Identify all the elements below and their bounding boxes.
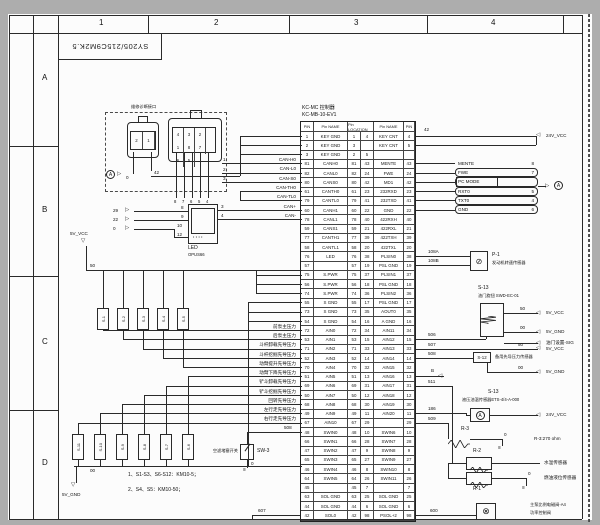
table-cell: 9 [404, 447, 415, 455]
table-cell: 66 [348, 437, 361, 445]
table-cell: 56 [348, 280, 361, 288]
pressure-sensor: S-3 [137, 308, 149, 330]
wire [103, 270, 104, 308]
wire [416, 349, 538, 350]
sensor-label: S-1 [101, 316, 106, 322]
wire [582, 15, 583, 519]
table-cell: 3 [348, 141, 361, 149]
table-cell: SOL GND [314, 502, 348, 510]
table-cell: 70 [301, 363, 314, 371]
wire [486, 337, 487, 339]
table-row: 58CANTL15820422TXL20 [301, 243, 415, 252]
table-cell: 16 [361, 317, 374, 325]
r1-name: R-1 [473, 487, 481, 493]
table-row: 72AIN07234AIN1134 [301, 326, 415, 335]
drawing-title: SY205/215C9M2K.5 [72, 42, 148, 51]
table-cell: 422RXH [374, 215, 404, 223]
table-cell: 42 [361, 178, 374, 186]
ets-name: S-13 [488, 390, 499, 396]
wire [122, 460, 123, 466]
table-cell: S.PWR [314, 289, 348, 297]
wire [448, 478, 466, 479]
sw3-name: SW-3 [257, 449, 269, 455]
table-cell: 3 [301, 151, 314, 159]
can-wire-label: CAN-L0 [236, 166, 296, 171]
can-wire-label: CAN-S0 [236, 176, 296, 181]
pin-label: 9 [181, 214, 184, 219]
table-cell [314, 262, 348, 270]
table-cell: 43 [404, 160, 415, 168]
wire [143, 270, 144, 308]
table-cell: 60 [301, 206, 314, 214]
wire [526, 478, 527, 486]
sig-label: 油门设置-SIG [546, 340, 574, 345]
table-cell: 17 [404, 299, 415, 307]
table-cell: 26 [361, 474, 374, 482]
wire [144, 395, 145, 434]
table-cell: 23 [404, 188, 415, 196]
gnd-label: 5V_GND [546, 329, 564, 334]
wire [222, 182, 302, 183]
table-cell: 61 [301, 188, 314, 196]
switch-label: S-11 [76, 443, 81, 451]
table-cell: CANTL1 [314, 243, 348, 251]
wire [100, 460, 101, 466]
wire [416, 136, 536, 137]
table-cell: 55 [348, 299, 361, 307]
table-cell: CANL1 [314, 215, 348, 223]
table-cell: 14 [361, 354, 374, 362]
table-cell [404, 151, 415, 159]
table-cell: SWIN10 [374, 465, 404, 473]
table-cell: 4 [404, 132, 415, 140]
signal-label: 回转先导压力 [150, 398, 296, 403]
table-cell: AOUT0 [374, 308, 404, 316]
table-cell: 64 [348, 474, 361, 482]
arrow-right-icon: ▷ [125, 207, 129, 213]
r2-name: R-2 [473, 449, 481, 455]
gnd-label: 0 [504, 432, 507, 437]
table-cell: 29 [404, 419, 415, 427]
page-fold-line [588, 14, 590, 522]
sensor-label: S-5 [181, 316, 186, 322]
led-module-model: OPUS66 [188, 253, 205, 258]
table-cell: 51 [348, 373, 361, 381]
grid-row-label: B [42, 206, 47, 215]
table-cell: 55 [301, 299, 314, 307]
can-wire-label: CAN-TL0 [236, 194, 296, 199]
wire [256, 275, 302, 276]
wire [416, 163, 455, 164]
table-cell: 25 [361, 493, 374, 501]
wire [134, 229, 174, 230]
table-cell: 422TXH [374, 234, 404, 242]
table-cell: 7 [404, 484, 415, 492]
table-cell: 48 [348, 428, 361, 436]
table-cell: 65 [301, 456, 314, 464]
table-cell: KEY CNT [374, 132, 404, 140]
wire [123, 330, 124, 339]
ets-sensor: A [470, 408, 490, 422]
table-cell: SWIN3 [314, 456, 348, 464]
sheet-ref-a: A [106, 170, 115, 179]
wire-label: 50 [520, 306, 525, 311]
table-row: 82CANL08224FWE24 [301, 169, 415, 178]
table-cell: 66 [301, 437, 314, 445]
table-cell: MENTE [374, 160, 404, 168]
pin-number: 2 [195, 128, 206, 141]
service-pin-label: MENTE [458, 161, 474, 166]
pressure-switch: S-7 [160, 434, 172, 460]
table-cell: 30 [361, 400, 374, 408]
table-row: 78CANL17840422RXH40 [301, 215, 415, 224]
service-pin-label: TXT0 [458, 198, 469, 203]
vcc-label: 5V_VCC [546, 310, 564, 315]
table-cell: PSL GND [374, 262, 404, 270]
service-pin-label: GND [458, 207, 468, 212]
table-cell: 11 [361, 410, 374, 418]
table-row: 49AIN94911AIN2011 [301, 410, 415, 419]
arrow-down-icon: ▽ [71, 482, 75, 488]
gnd-label: 0 [528, 471, 531, 476]
service-pin-number: 4 [524, 198, 534, 203]
table-cell: 28 [361, 437, 374, 445]
table-row: 2KEY GND3KEY CNT5 [301, 141, 415, 150]
service-pin-number: 5 [524, 189, 534, 194]
table-cell: 74 [348, 289, 361, 297]
wire [416, 210, 455, 211]
wire-label: 108A [428, 249, 439, 254]
controller-model: KC-MB-10-EV1 [302, 113, 336, 119]
note-1: 1、S1-S3、S6-S12：KM10-5； [128, 473, 199, 479]
wire [248, 321, 302, 322]
table-cell: MD1 [374, 178, 404, 186]
table-cell: 50 [301, 391, 314, 399]
table-cell: 21 [404, 225, 415, 233]
can-wire-label: CAN- [236, 213, 296, 218]
wire [122, 404, 123, 434]
table-cell: 44 [348, 502, 361, 510]
wire [416, 145, 536, 146]
wire [78, 423, 79, 434]
p1-label: 发动机转速传感器 [492, 261, 526, 266]
table-cell: 53 [348, 336, 361, 344]
table-cell: 30 [404, 400, 415, 408]
wire [487, 372, 538, 373]
table-cell: 45 [348, 484, 361, 492]
led-module-pins-icon: •••• [193, 236, 204, 240]
table-cell: CANTL0 [314, 197, 348, 205]
table-cell: AIN5 [314, 373, 348, 381]
pin-label: 12 [177, 232, 182, 237]
wire [448, 463, 449, 478]
potentiometer-icon [484, 312, 492, 333]
table-cell: SWIN0 [314, 428, 348, 436]
table-cell: 22 [361, 206, 374, 214]
pin-number: 1 [173, 141, 184, 154]
wire [78, 423, 302, 424]
resistor-r3-icon [448, 435, 470, 453]
table-cell: 40 [404, 215, 415, 223]
arrow-down-icon: ▽ [81, 238, 85, 244]
pin-number: 3 [184, 128, 195, 141]
table-cell: AIN18 [374, 391, 404, 399]
arrow-left-icon: ◁ [536, 412, 540, 418]
wire [166, 460, 167, 466]
table-row: 46SWIN4468SWIN108 [301, 465, 415, 474]
wire [416, 200, 455, 201]
signal-label: 前泵主压力 [150, 324, 296, 329]
table-cell: LED [314, 252, 348, 260]
table-cell: 64 [301, 474, 314, 482]
table-cell: 2 [301, 141, 314, 149]
wire [166, 386, 302, 387]
table-cell: 18 [361, 280, 374, 288]
wire [218, 210, 302, 211]
table-cell: 5 [404, 141, 415, 149]
wire [240, 136, 302, 137]
arrow-left-icon: ◁ [536, 132, 540, 138]
wire [256, 293, 302, 294]
table-cell: CANTH1 [314, 234, 348, 242]
table-cell: 4 [361, 132, 374, 140]
table-cell: 12 [361, 391, 374, 399]
ets-label: 液压油温传感器ETS-4/4-A-000 [462, 398, 519, 403]
table-cell: CANH0 [314, 160, 348, 168]
wire [563, 15, 564, 33]
table-row: 80CANS08042MD142 [301, 178, 415, 187]
table-cell: 37 [361, 271, 374, 279]
table-cell: 36 [404, 289, 415, 297]
wire [504, 313, 538, 314]
table-row: 56S.PWR5618PSL GND18 [301, 280, 415, 289]
table-cell: 80 [301, 178, 314, 186]
table-cell: SOL GND [374, 502, 404, 510]
wire [134, 211, 188, 212]
table-row: 48SWIN04810SWIN610 [301, 428, 415, 437]
wire-label: 42 [154, 170, 159, 175]
table-cell: 36 [361, 289, 374, 297]
table-cell: 10 [404, 428, 415, 436]
table-cell: 76 [301, 252, 314, 260]
vcc-label: 5V_VCC [546, 346, 564, 351]
diagnostic-port-label: 维修诊断接口 [131, 105, 156, 110]
table-cell: 74 [301, 289, 314, 297]
wire [240, 191, 302, 192]
wire [416, 339, 486, 340]
wire [289, 15, 290, 33]
table-cell: 63 [301, 493, 314, 501]
table-cell [314, 484, 348, 492]
grid-row-label: D [42, 459, 48, 468]
table-cell: 40 [361, 215, 374, 223]
wire [174, 237, 188, 238]
led-module-screen [191, 208, 215, 234]
table-cell: 49 [301, 410, 314, 418]
note-2: 2、S4、S5：KM10-50； [128, 488, 183, 494]
table-cell: 80 [348, 178, 361, 186]
schematic-canvas: SY205/215C9M2K.5 PINPin NAMEPin LOCATION… [0, 0, 600, 525]
arrow-left-icon: ◁ [536, 369, 540, 375]
table-cell: CANH1 [314, 206, 348, 214]
table-cell [374, 484, 404, 492]
table-cell: 12 [404, 391, 415, 399]
table-cell: 68 [301, 400, 314, 408]
signal-label: 铲斗卸载先导压力 [150, 379, 296, 384]
wire [9, 33, 582, 34]
can-wire-label: CAN-TH0 [236, 185, 296, 190]
r3-name: R-3 [461, 427, 469, 433]
table-cell: AIN15 [374, 363, 404, 371]
wire [416, 358, 473, 359]
sensor-label: S-2 [121, 316, 126, 322]
table-cell: 78 [348, 215, 361, 223]
table-cell: 8 [361, 465, 374, 473]
wire [100, 413, 101, 434]
table-cell: 39 [361, 234, 374, 242]
table-cell: 19 [404, 262, 415, 270]
table-cell: 38 [361, 252, 374, 260]
sheet-ref-a: A [554, 181, 563, 190]
table-cell: 31 [404, 382, 415, 390]
table-cell: GND [374, 206, 404, 214]
wire [123, 270, 124, 308]
pc-mode-box [456, 177, 498, 186]
table-header: Pin NAME [314, 122, 348, 131]
s12-sensor: S-12 [473, 352, 491, 363]
arrow-left-icon: ◁ [438, 373, 442, 379]
wire [416, 191, 455, 192]
wire [9, 146, 58, 147]
table-cell: 1 [301, 132, 314, 140]
wire [252, 515, 300, 516]
table-cell: 81 [301, 160, 314, 168]
wire [143, 349, 302, 350]
table-cell: 63 [348, 493, 361, 501]
wire [470, 439, 502, 440]
pressure-switch: S-8 [138, 434, 150, 460]
bus-5v-label: 5V_VCC [70, 231, 88, 236]
pin-label: 3 [221, 204, 224, 209]
grid-col-label: 1 [99, 19, 103, 28]
table-cell: AIN17 [374, 382, 404, 390]
table-cell: 39 [404, 234, 415, 242]
table-cell: 24 [404, 169, 415, 177]
table-cell: 52 [301, 354, 314, 362]
pin-label: 10 [177, 223, 182, 228]
pin-number: 6 [173, 154, 184, 167]
wire-label: 108B [428, 258, 439, 263]
table-cell: 37 [404, 271, 415, 279]
table-row: 47SWIN2479SWIN89 [301, 447, 415, 456]
table-cell: AIN10 [314, 419, 348, 427]
table-row: 64SWIN56426SWIN1126 [301, 474, 415, 483]
table-row: 79CANTL07941232TXD41 [301, 197, 415, 206]
table-cell: 79 [348, 197, 361, 205]
table-cell: 54 [348, 317, 361, 325]
arrow-right-icon: ▷ [125, 216, 129, 222]
table-cell: 32 [361, 363, 374, 371]
table-cell: 59 [348, 225, 361, 233]
table-cell: 11 [404, 410, 415, 418]
table-cell: 44 [301, 502, 314, 510]
table-cell: PSL GND [374, 299, 404, 307]
switch-label: S-7 [164, 444, 169, 450]
pressure-switch: S-9 [116, 434, 128, 460]
wire [58, 15, 59, 519]
table-cell: 82 [348, 169, 361, 177]
can-wire-label: CAN-H0 [236, 157, 296, 162]
wire [492, 463, 540, 464]
table-row: 73S GND7335AOUT035 [301, 308, 415, 317]
table-row: 55S GND5517PSL GND17 [301, 299, 415, 308]
p1-sensor: ⊘ [470, 251, 488, 271]
wire [183, 367, 302, 368]
table-cell: SWIN1 [314, 437, 348, 445]
table-cell [374, 151, 404, 159]
temp-sensor-icon: A [476, 411, 485, 420]
table-row: 3KEY GND25 [301, 151, 415, 160]
table-cell: 69 [301, 382, 314, 390]
pin-number: 5 [184, 154, 195, 167]
table-row: 66SWIN16628SWIN728 [301, 437, 415, 446]
table-cell: 71 [301, 345, 314, 353]
table-cell: 20 [361, 243, 374, 251]
table-cell: SWIN11 [374, 474, 404, 482]
speed-sensor-icon: ⊘ [476, 257, 483, 266]
table-cell: S.PWR [314, 280, 348, 288]
table-cell: 27 [361, 456, 374, 464]
table-cell: SWIN6 [374, 428, 404, 436]
wire [163, 358, 302, 359]
signal-label: 斗杆卸载先导压力 [150, 342, 296, 347]
table-cell: SOL GND [314, 493, 348, 501]
wire [188, 376, 302, 377]
table-cell: KEY GND [314, 141, 348, 149]
table-cell: 49 [348, 410, 361, 418]
wire [490, 415, 538, 416]
wire [240, 154, 302, 155]
table-cell: CANTH0 [314, 188, 348, 196]
table-cell: KEY GND [314, 132, 348, 140]
table-row: 67AIN10672929 [301, 419, 415, 428]
table-cell: CANS0 [314, 178, 348, 186]
pin-number: 8 [184, 141, 195, 154]
table-cell: 43 [361, 160, 374, 168]
table-cell: 6 [361, 502, 374, 510]
table-cell: PLSIN2 [374, 289, 404, 297]
table-cell: 33 [361, 345, 374, 353]
table-cell: 34 [361, 326, 374, 334]
table-cell: 31 [361, 382, 374, 390]
connector-2pin-body: 21 [130, 131, 156, 150]
table-header: PIN [404, 122, 415, 131]
table-cell: 29 [361, 419, 374, 427]
table-cell: 50 [348, 391, 361, 399]
table-cell: 57 [301, 262, 314, 270]
table-row: 74S.PWR7436PLSIN236 [301, 289, 415, 298]
table-cell: PLSIN0 [374, 252, 404, 260]
sw3-label: 空滤堵塞开关 [180, 449, 238, 454]
table-cell: 13 [361, 373, 374, 381]
led-module-name: LED [188, 246, 198, 252]
table-cell: 69 [348, 382, 361, 390]
solenoid-valve: ⊗ [476, 503, 496, 520]
wire [247, 432, 248, 444]
wire [502, 439, 503, 446]
table-cell: SWIN2 [314, 447, 348, 455]
wire [256, 284, 302, 285]
